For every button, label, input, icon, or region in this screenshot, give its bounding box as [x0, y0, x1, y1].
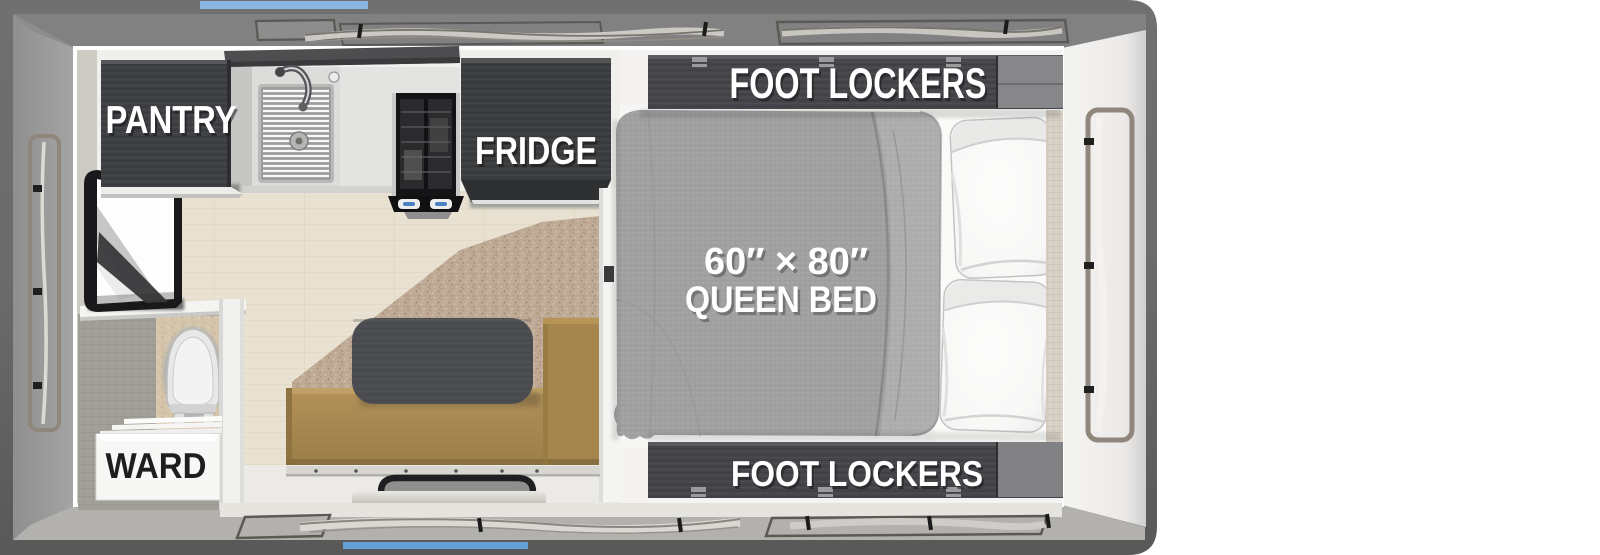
svg-text:FOOT LOCKERS: FOOT LOCKERS — [731, 453, 983, 494]
svg-text:FOOT LOCKERS: FOOT LOCKERS — [730, 60, 987, 108]
svg-text:WARD: WARD — [106, 445, 207, 486]
svg-text:QUEEN BED: QUEEN BED — [685, 279, 877, 320]
svg-text:60″ × 80″: 60″ × 80″ — [704, 241, 868, 283]
svg-text:PANTRY: PANTRY — [106, 99, 237, 142]
svg-text:FRIDGE: FRIDGE — [475, 130, 597, 173]
